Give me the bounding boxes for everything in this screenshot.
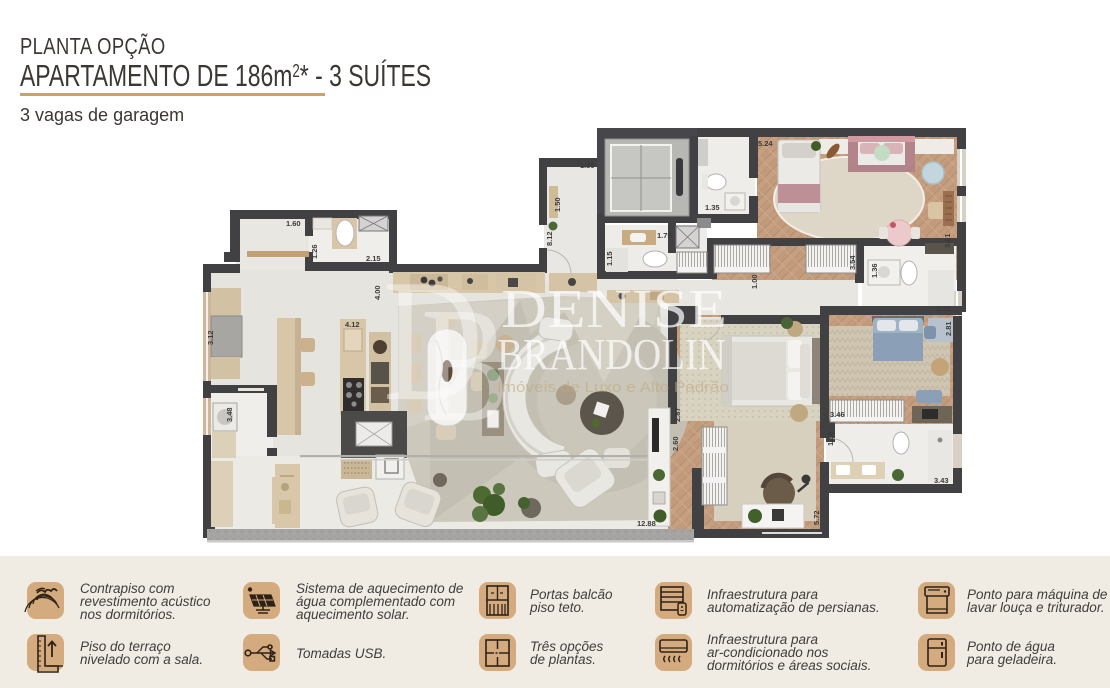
svg-text:8.12: 8.12: [545, 231, 554, 246]
svg-text:3.46: 3.46: [830, 410, 845, 419]
svg-text:Imóveis de Luxo e Alto Padrão: Imóveis de Luxo e Alto Padrão: [497, 379, 729, 396]
svg-text:1.50: 1.50: [580, 161, 595, 170]
svg-text:1.50: 1.50: [553, 197, 562, 212]
svg-text:3.01: 3.01: [943, 233, 952, 248]
svg-text:2.15: 2.15: [366, 254, 381, 263]
svg-text:3.48: 3.48: [225, 407, 234, 422]
svg-text:1.75: 1.75: [657, 231, 672, 240]
svg-text:3.43: 3.43: [934, 476, 949, 485]
svg-text:4.00: 4.00: [373, 285, 382, 300]
svg-text:1.00: 1.00: [750, 274, 759, 289]
svg-text:1.15: 1.15: [605, 251, 614, 266]
svg-text:2.31: 2.31: [936, 304, 951, 313]
svg-text:12.88: 12.88: [637, 519, 656, 528]
svg-text:B: B: [421, 273, 509, 456]
svg-text:4.12: 4.12: [345, 320, 360, 329]
svg-text:1.26: 1.26: [310, 244, 319, 259]
svg-text:3.12: 3.12: [206, 330, 215, 345]
svg-text:1.60: 1.60: [286, 219, 301, 228]
svg-text:2.81: 2.81: [944, 321, 953, 336]
svg-text:5.72: 5.72: [812, 510, 821, 525]
svg-text:1.50: 1.50: [826, 431, 835, 446]
svg-text:5.24: 5.24: [758, 139, 773, 148]
svg-text:1.36: 1.36: [870, 263, 879, 278]
svg-text:2.87: 2.87: [673, 407, 682, 422]
svg-text:2.60: 2.60: [671, 436, 680, 451]
svg-text:3.54: 3.54: [848, 255, 857, 270]
svg-text:BRANDOLIN: BRANDOLIN: [497, 330, 726, 379]
svg-text:1.35: 1.35: [705, 203, 720, 212]
